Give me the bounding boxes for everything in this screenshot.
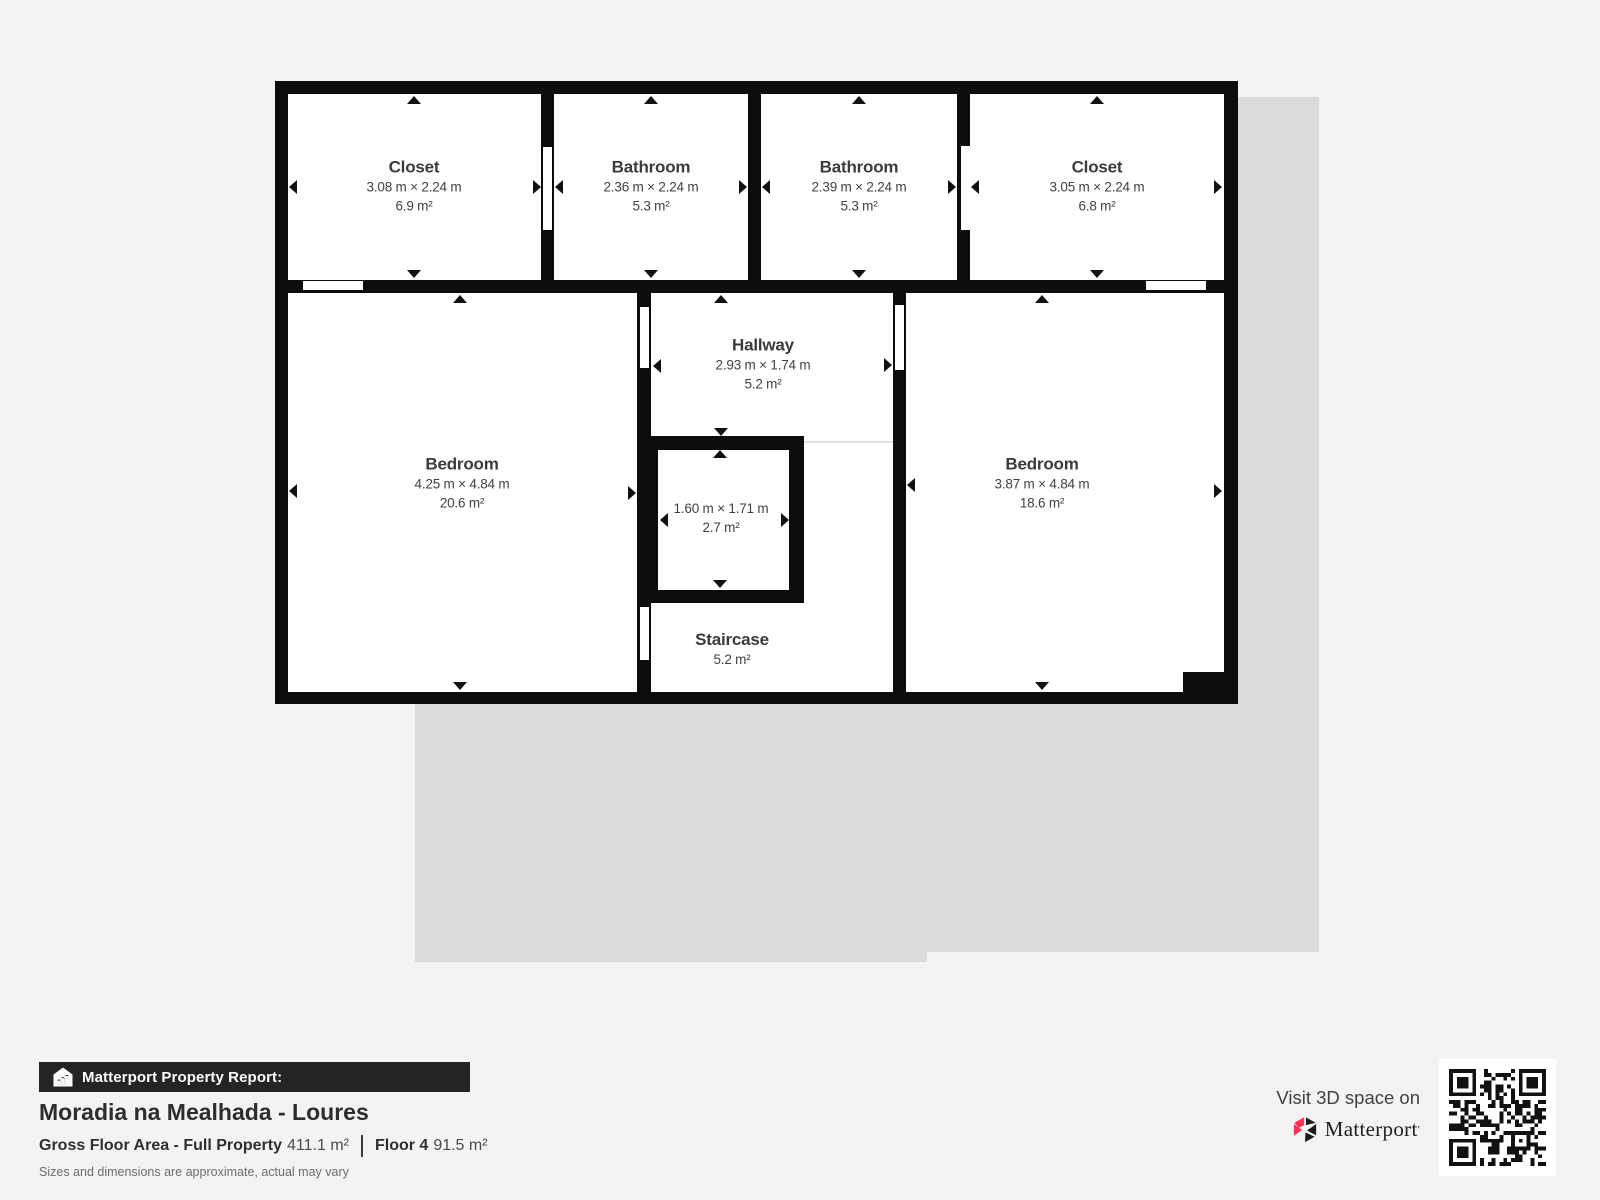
qr-code [1449, 1069, 1546, 1166]
room-area: 5.2 m² [716, 375, 811, 394]
matterport-wordmark: Matterport [1325, 1117, 1418, 1142]
door-opening [640, 607, 649, 660]
gross-floor-area-value: 411.1 m² [287, 1137, 349, 1155]
room-dimensions: 3.87 m × 4.84 m [995, 475, 1090, 494]
wall [789, 436, 804, 603]
door-opening [543, 147, 552, 230]
dimension-arrow-right [533, 180, 541, 194]
dimension-arrow-down [1090, 270, 1104, 278]
matterport-brand: Matterport ′ [1292, 1115, 1420, 1144]
dimension-arrow-down [644, 270, 658, 278]
report-header-bar: Matterport Property Report: [39, 1062, 470, 1092]
dimension-arrow-down [713, 580, 727, 588]
room-label-staircase: Staircase 5.2 m² [695, 629, 769, 669]
room-area: 2.7 m² [674, 518, 769, 537]
dimension-arrow-right [781, 513, 789, 527]
dimension-arrow-left [762, 180, 770, 194]
room-area: 6.8 m² [1050, 197, 1145, 216]
door-opening [640, 307, 649, 368]
room-name: Closet [1050, 157, 1145, 178]
floor-label: Floor 4 [375, 1137, 428, 1155]
room-dimensions: 4.25 m × 4.84 m [415, 475, 510, 494]
room-label-hallway: Hallway 2.93 m × 1.74 m 5.2 m² [716, 335, 811, 394]
room-dimensions: 3.05 m × 2.24 m [1050, 178, 1145, 197]
dimension-arrow-right [1214, 180, 1222, 194]
dimension-arrow-up [1035, 295, 1049, 303]
dimension-arrow-up [714, 295, 728, 303]
gross-floor-area-label: Gross Floor Area - Full Property [39, 1137, 282, 1155]
room-name: Hallway [716, 335, 811, 356]
door-opening [303, 281, 363, 290]
room-name: Bedroom [415, 454, 510, 475]
room-area: 5.3 m² [812, 197, 907, 216]
room-label-bedroom-right: Bedroom 3.87 m × 4.84 m 18.6 m² [995, 454, 1090, 513]
dimension-arrow-down [714, 428, 728, 436]
room-label-bathroom-2: Bathroom 2.39 m × 2.24 m 5.3 m² [812, 157, 907, 216]
room-dimensions: 2.93 m × 1.74 m [716, 356, 811, 375]
trademark-mark: ′ [1418, 1123, 1420, 1137]
floor-area-value: 91.5 m² [433, 1137, 487, 1155]
dimension-arrow-right [948, 180, 956, 194]
dimension-arrow-right [884, 358, 892, 372]
room-name: Bedroom [995, 454, 1090, 475]
room-area: 5.2 m² [695, 650, 769, 669]
room-label-bathroom-1: Bathroom 2.36 m × 2.24 m 5.3 m² [604, 157, 699, 216]
room-area: 18.6 m² [995, 494, 1090, 513]
wall-notch [1183, 672, 1224, 692]
dimension-arrow-up [644, 96, 658, 104]
room-name: Closet [367, 157, 462, 178]
room-name: Bathroom [604, 157, 699, 178]
wall [643, 436, 658, 603]
room-label-closet-2: Closet 3.05 m × 2.24 m 6.8 m² [1050, 157, 1145, 216]
room-dimensions: 1.60 m × 1.71 m [674, 499, 769, 518]
dimension-arrow-left [660, 513, 668, 527]
room-boundary-line [804, 441, 893, 443]
dimension-arrow-up [407, 96, 421, 104]
room-name: Staircase [695, 629, 769, 650]
dimension-arrow-left [289, 180, 297, 194]
dimension-arrow-left [289, 484, 297, 498]
property-title: Moradia na Mealhada - Loures [39, 1098, 369, 1126]
door-opening [961, 146, 971, 230]
dimension-arrow-left [907, 478, 915, 492]
room-area: 5.3 m² [604, 197, 699, 216]
room-area: 20.6 m² [415, 494, 510, 513]
divider [361, 1135, 363, 1157]
adjacent-floor-silhouette-step [415, 952, 927, 962]
floor-area-summary: Gross Floor Area - Full Property 411.1 m… [39, 1134, 488, 1158]
wall [637, 590, 804, 603]
disclaimer-text: Sizes and dimensions are approximate, ac… [39, 1163, 349, 1181]
matterport-logo-icon [1292, 1115, 1318, 1144]
dimension-arrow-right [739, 180, 747, 194]
qr-code-box [1439, 1059, 1556, 1176]
room-dimensions: 2.39 m × 2.24 m [812, 178, 907, 197]
door-opening [895, 305, 904, 370]
visit-3d-space-label: Visit 3D space on [1276, 1086, 1420, 1110]
room-label-closet-1: Closet 3.08 m × 2.24 m 6.9 m² [367, 157, 462, 216]
wall [637, 436, 804, 450]
dimension-arrow-right [1214, 484, 1222, 498]
dimension-arrow-up [453, 295, 467, 303]
room-name: Bathroom [812, 157, 907, 178]
adjacent-floor-silhouette-bottom [415, 697, 1319, 952]
room-label-shaft: 1.60 m × 1.71 m 2.7 m² [674, 499, 769, 537]
report-header-label: Matterport Property Report: [82, 1069, 282, 1086]
dimension-arrow-down [407, 270, 421, 278]
house-icon [53, 1067, 73, 1087]
dimension-arrow-up [713, 450, 727, 458]
dimension-arrow-left [555, 180, 563, 194]
dimension-arrow-down [852, 270, 866, 278]
dimension-arrow-down [1035, 682, 1049, 690]
room-label-bedroom-left: Bedroom 4.25 m × 4.84 m 20.6 m² [415, 454, 510, 513]
matterport-floorplan-report: Closet 3.08 m × 2.24 m 6.9 m² Bathroom 2… [0, 0, 1600, 1200]
door-opening [1146, 281, 1206, 290]
visit-3d-space-cta: Visit 3D space on Matterport ′ [1276, 1086, 1420, 1144]
room-area: 6.9 m² [367, 197, 462, 216]
dimension-arrow-left [971, 180, 979, 194]
dimension-arrow-right [628, 486, 636, 500]
room-dimensions: 3.08 m × 2.24 m [367, 178, 462, 197]
room-dimensions: 2.36 m × 2.24 m [604, 178, 699, 197]
dimension-arrow-down [453, 682, 467, 690]
dimension-arrow-up [1090, 96, 1104, 104]
dimension-arrow-left [653, 359, 661, 373]
dimension-arrow-up [852, 96, 866, 104]
